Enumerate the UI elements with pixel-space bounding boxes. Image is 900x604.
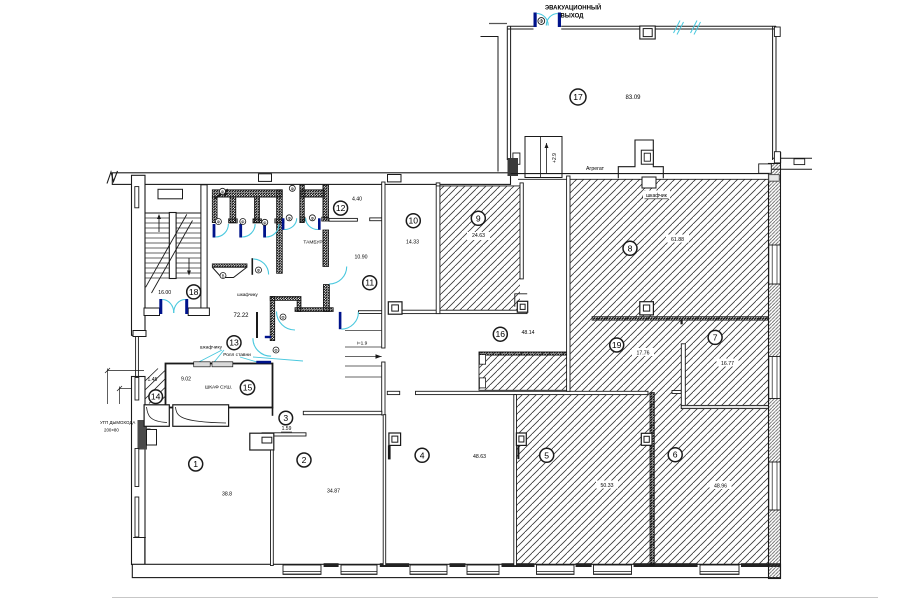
svg-text:4.40: 4.40 [352,197,362,203]
svg-text:i=1.9: i=1.9 [357,341,368,347]
svg-text:19: 19 [612,340,622,350]
svg-text:16: 16 [496,329,506,339]
svg-text:13: 13 [229,338,239,348]
svg-text:4: 4 [420,450,425,460]
svg-text:Ф: Ф [263,220,266,225]
svg-text:1.59: 1.59 [282,426,292,432]
svg-text:3: 3 [283,413,288,423]
svg-text:2: 2 [302,455,307,465]
svg-text:83.09: 83.09 [625,95,641,101]
svg-text:1: 1 [193,459,198,469]
svg-text:17.76: 17.76 [637,351,650,357]
svg-text:Ролл ставни: Ролл ставни [223,352,251,358]
svg-text:+2.9: +2.9 [552,153,558,163]
svg-text:48.96: 48.96 [714,484,727,490]
svg-text:Ф: Ф [241,220,244,225]
svg-text:УГП ДЫМОХОДА: УГП ДЫМОХОДА [100,420,135,425]
svg-text:9: 9 [476,213,481,223]
svg-text:7: 7 [713,332,718,342]
svg-text:17: 17 [573,92,583,102]
svg-text:8: 8 [628,243,633,253]
svg-text:Ф: Ф [217,220,220,225]
svg-text:61.88: 61.88 [671,237,684,243]
svg-text:72.22: 72.22 [233,313,249,319]
svg-text:ШКАФ СУШ.: ШКАФ СУШ. [205,385,232,391]
svg-text:200×80: 200×80 [104,428,119,433]
svg-text:38.8: 38.8 [222,492,232,498]
svg-text:Ф: Ф [291,186,294,191]
svg-text:Ф: Ф [539,19,543,25]
svg-text:Ф: Ф [221,189,224,194]
svg-text:Агрегат: Агрегат [586,166,605,172]
svg-text:50.33: 50.33 [601,483,614,489]
svg-text:5: 5 [544,450,549,460]
svg-text:11: 11 [365,278,374,288]
svg-text:48.14: 48.14 [522,330,535,336]
svg-text:Ф: Ф [311,216,314,221]
svg-text:14.33: 14.33 [406,240,419,246]
svg-text:Ф: Ф [257,268,260,273]
svg-text:34.87: 34.87 [327,489,340,495]
svg-text:6: 6 [673,450,678,460]
svg-text:24.63: 24.63 [472,233,485,239]
svg-text:1.45: 1.45 [148,377,158,383]
svg-text:16.00: 16.00 [158,290,171,296]
svg-text:12: 12 [336,203,346,213]
svg-text:9.02: 9.02 [181,377,191,383]
svg-text:16.77: 16.77 [721,361,734,367]
svg-text:14: 14 [151,392,161,402]
svg-text:шкафчик: шкафчик [646,193,667,199]
svg-text:Ф: Ф [281,315,284,320]
svg-text:шкафчику: шкафчику [200,345,223,351]
svg-text:48.63: 48.63 [473,454,486,460]
svg-text:10: 10 [409,216,419,226]
svg-text:ТАМБУР: ТАМБУР [303,240,322,246]
svg-text:15: 15 [243,383,253,393]
svg-text:В: В [222,274,225,279]
svg-text:10.90: 10.90 [355,255,368,261]
svg-text:ЭВАКУАЦИОННЫЙ: ЭВАКУАЦИОННЫЙ [545,4,601,12]
svg-text:шкафчику: шкафчику [237,292,258,297]
svg-text:ВЫХОД: ВЫХОД [561,14,585,20]
svg-text:18: 18 [189,287,199,297]
svg-text:Ф: Ф [274,348,277,353]
svg-text:Ф: Ф [288,216,291,221]
